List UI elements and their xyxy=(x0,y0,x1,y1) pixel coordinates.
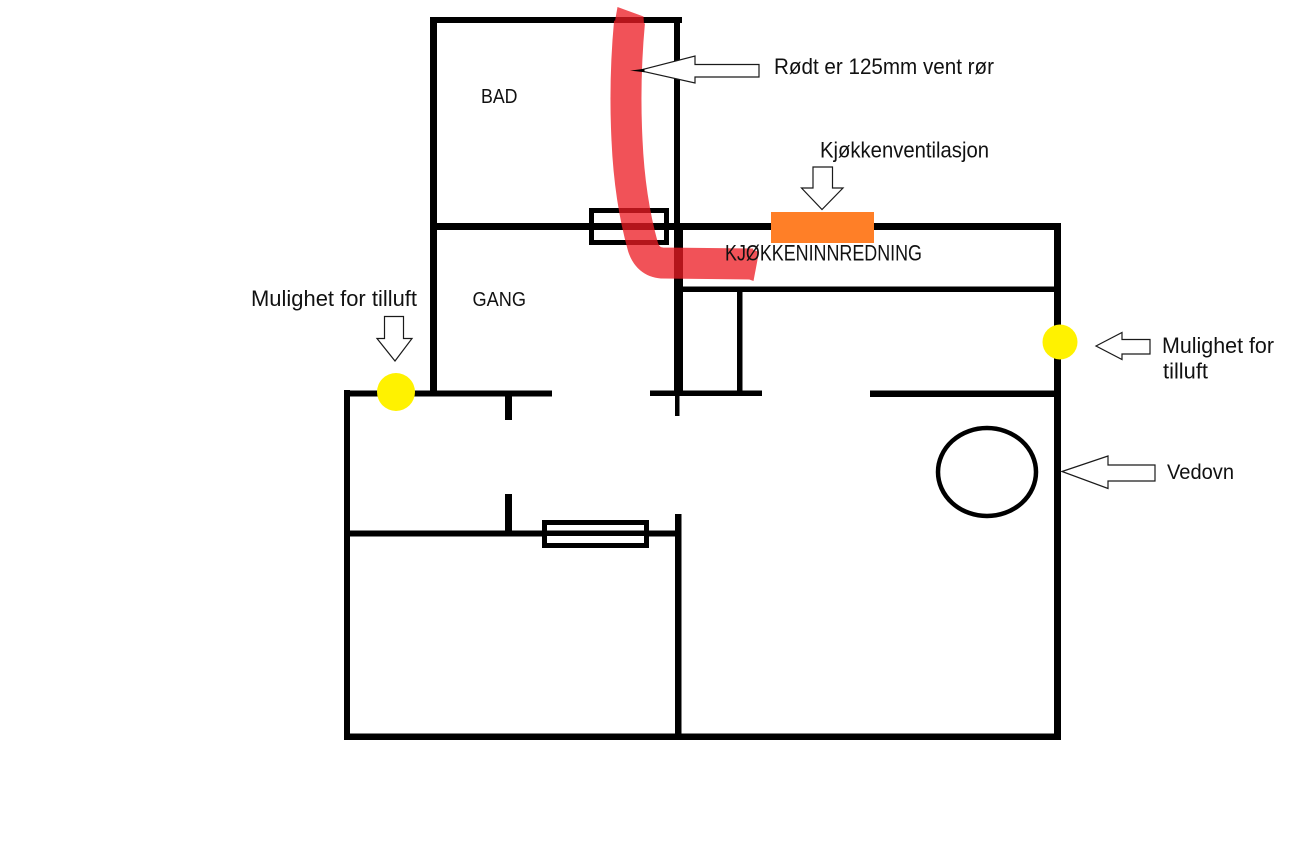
svg-text:Mulighet for tilluft: Mulighet for tilluft xyxy=(251,286,417,311)
svg-text:tilluft: tilluft xyxy=(1163,359,1208,384)
svg-text:Kjøkkenventilasjon: Kjøkkenventilasjon xyxy=(820,138,989,163)
svg-text:Vedovn: Vedovn xyxy=(1167,461,1234,484)
svg-text:Rødt er 125mm vent rør: Rødt er 125mm vent rør xyxy=(774,54,994,79)
svg-text:GANG: GANG xyxy=(473,289,527,311)
svg-text:KJØKKENINNREDNING: KJØKKENINNREDNING xyxy=(725,241,922,266)
svg-text:Mulighet for: Mulighet for xyxy=(1162,333,1274,358)
svg-text:BAD: BAD xyxy=(481,86,518,108)
